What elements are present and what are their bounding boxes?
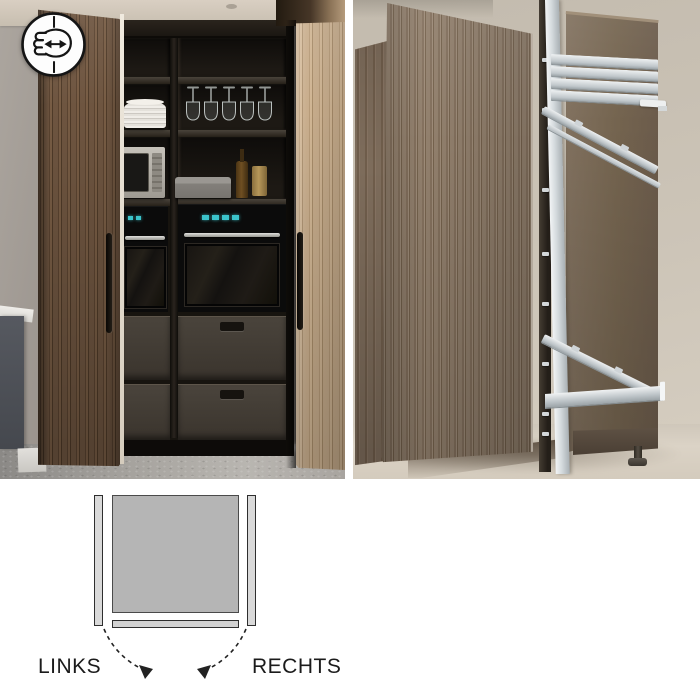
door-direction-diagram: LINKS RECHTS — [0, 479, 352, 679]
door-handle-left — [106, 233, 112, 333]
drawer-handle-recess — [220, 390, 244, 399]
door-swing-arrows — [90, 627, 260, 679]
channel-clip — [542, 432, 549, 436]
channel-clip — [542, 188, 549, 192]
photo-open-cabinet — [0, 0, 345, 479]
shelf-divider — [120, 199, 170, 206]
pocket-door-left-edge — [120, 14, 124, 464]
oven-door-glass — [125, 247, 166, 308]
shelf-divider — [178, 77, 286, 84]
oven-display — [128, 216, 141, 220]
door-gap-shadow — [286, 20, 296, 468]
channel-clip — [542, 252, 549, 256]
hand-slide-horizontal-icon — [20, 11, 87, 78]
photo-door-mechanism — [353, 0, 700, 479]
cabinet-bottom-frame — [112, 440, 293, 456]
center-mullion — [170, 38, 178, 438]
cabinet-top-frame — [112, 20, 293, 38]
shelf-compartment — [178, 38, 286, 77]
shelf-compartment — [120, 38, 170, 77]
oven-handle — [125, 236, 165, 240]
oven-handle — [184, 233, 280, 237]
cabinet-top-view — [112, 495, 239, 613]
pocket-side-left — [94, 495, 103, 626]
oven-left — [122, 206, 168, 312]
shelf-divider — [178, 130, 286, 137]
oven-door-glass — [185, 244, 279, 306]
pocket-door-right — [296, 22, 345, 470]
drawer — [178, 384, 286, 440]
ceiling-light — [226, 4, 237, 9]
pocket-side-right — [247, 495, 256, 626]
microwave-controls — [152, 153, 162, 192]
oven-display — [202, 215, 239, 220]
drawer — [120, 316, 170, 380]
shelf-divider — [120, 77, 170, 84]
plate-stack — [124, 101, 166, 128]
arrowhead-right — [197, 665, 211, 679]
counter-front-panel — [0, 316, 24, 449]
gold-canister — [252, 166, 267, 196]
cabinet-foot-base — [628, 458, 647, 466]
pocket-door-cabinet-sheet: LINKS RECHTS — [0, 0, 700, 679]
label-rechts: RECHTS — [252, 655, 341, 679]
storage-box — [175, 177, 231, 198]
drawer-handle-recess — [220, 322, 244, 331]
channel-clip — [542, 362, 549, 366]
drawer — [178, 316, 286, 380]
oven-right — [178, 204, 286, 312]
shelf-divider — [120, 130, 170, 137]
door-handle-right — [297, 232, 303, 330]
microwave — [119, 147, 165, 198]
label-links: LINKS — [38, 655, 101, 679]
microwave-window — [123, 153, 149, 192]
drawer — [120, 384, 170, 440]
wine-bottle — [236, 161, 248, 198]
pocket-door-panel — [381, 2, 533, 472]
arrowhead-left — [139, 665, 153, 679]
wine-glasses — [183, 86, 275, 130]
channel-clip — [542, 412, 549, 416]
latch-bracket — [658, 106, 667, 111]
channel-clip — [542, 302, 549, 306]
